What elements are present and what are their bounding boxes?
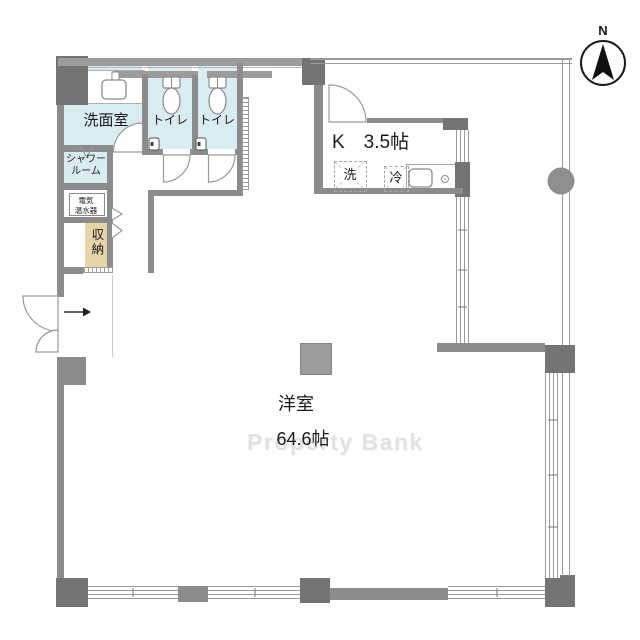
door-arc-icon	[329, 85, 366, 122]
kitchen-label: K 3.5帖	[332, 132, 409, 154]
entry-arrow-icon	[83, 308, 91, 317]
compass-label: N	[598, 24, 607, 39]
door-arc-icon	[164, 155, 191, 182]
fridge-label: 冷	[388, 171, 403, 186]
kitchen-sink-icon	[409, 169, 449, 187]
closet-chevron-icon	[112, 208, 122, 220]
door-arc-icon	[209, 155, 236, 182]
window-tick	[133, 230, 557, 597]
washroom-label: 洗面室	[83, 112, 128, 129]
door-lock-icon	[149, 138, 159, 150]
column-round	[548, 168, 575, 195]
toilet-icon	[163, 77, 180, 114]
door-lock-icon	[196, 138, 206, 150]
toilet-b-label: トイレ	[199, 114, 235, 128]
toilet-icon	[209, 77, 226, 114]
living-room-size: 64.6帖	[276, 429, 329, 450]
toilet-a-label: トイレ	[152, 114, 188, 128]
shower-label: シャワー ルーム	[66, 154, 106, 177]
closet-chevron-icon	[112, 223, 122, 238]
floorplan-canvas: Property Bank 洗面室 トイレ トイレ シャワー ルーム 電気 温水…	[0, 0, 640, 640]
entrance-door-arc-icon	[36, 330, 58, 352]
north-arrow-icon	[581, 41, 625, 85]
watermark-text: Property Bank	[247, 429, 424, 456]
storage-label: 収納	[89, 228, 103, 257]
sink-icon	[102, 72, 126, 99]
symbol-overlay	[0, 0, 640, 640]
entrance-door-arc-icon	[23, 296, 58, 331]
washer-label: 洗	[342, 168, 357, 183]
water-heater-label: 電気 温水器	[75, 196, 98, 216]
living-room-label: 洋室	[278, 394, 314, 415]
